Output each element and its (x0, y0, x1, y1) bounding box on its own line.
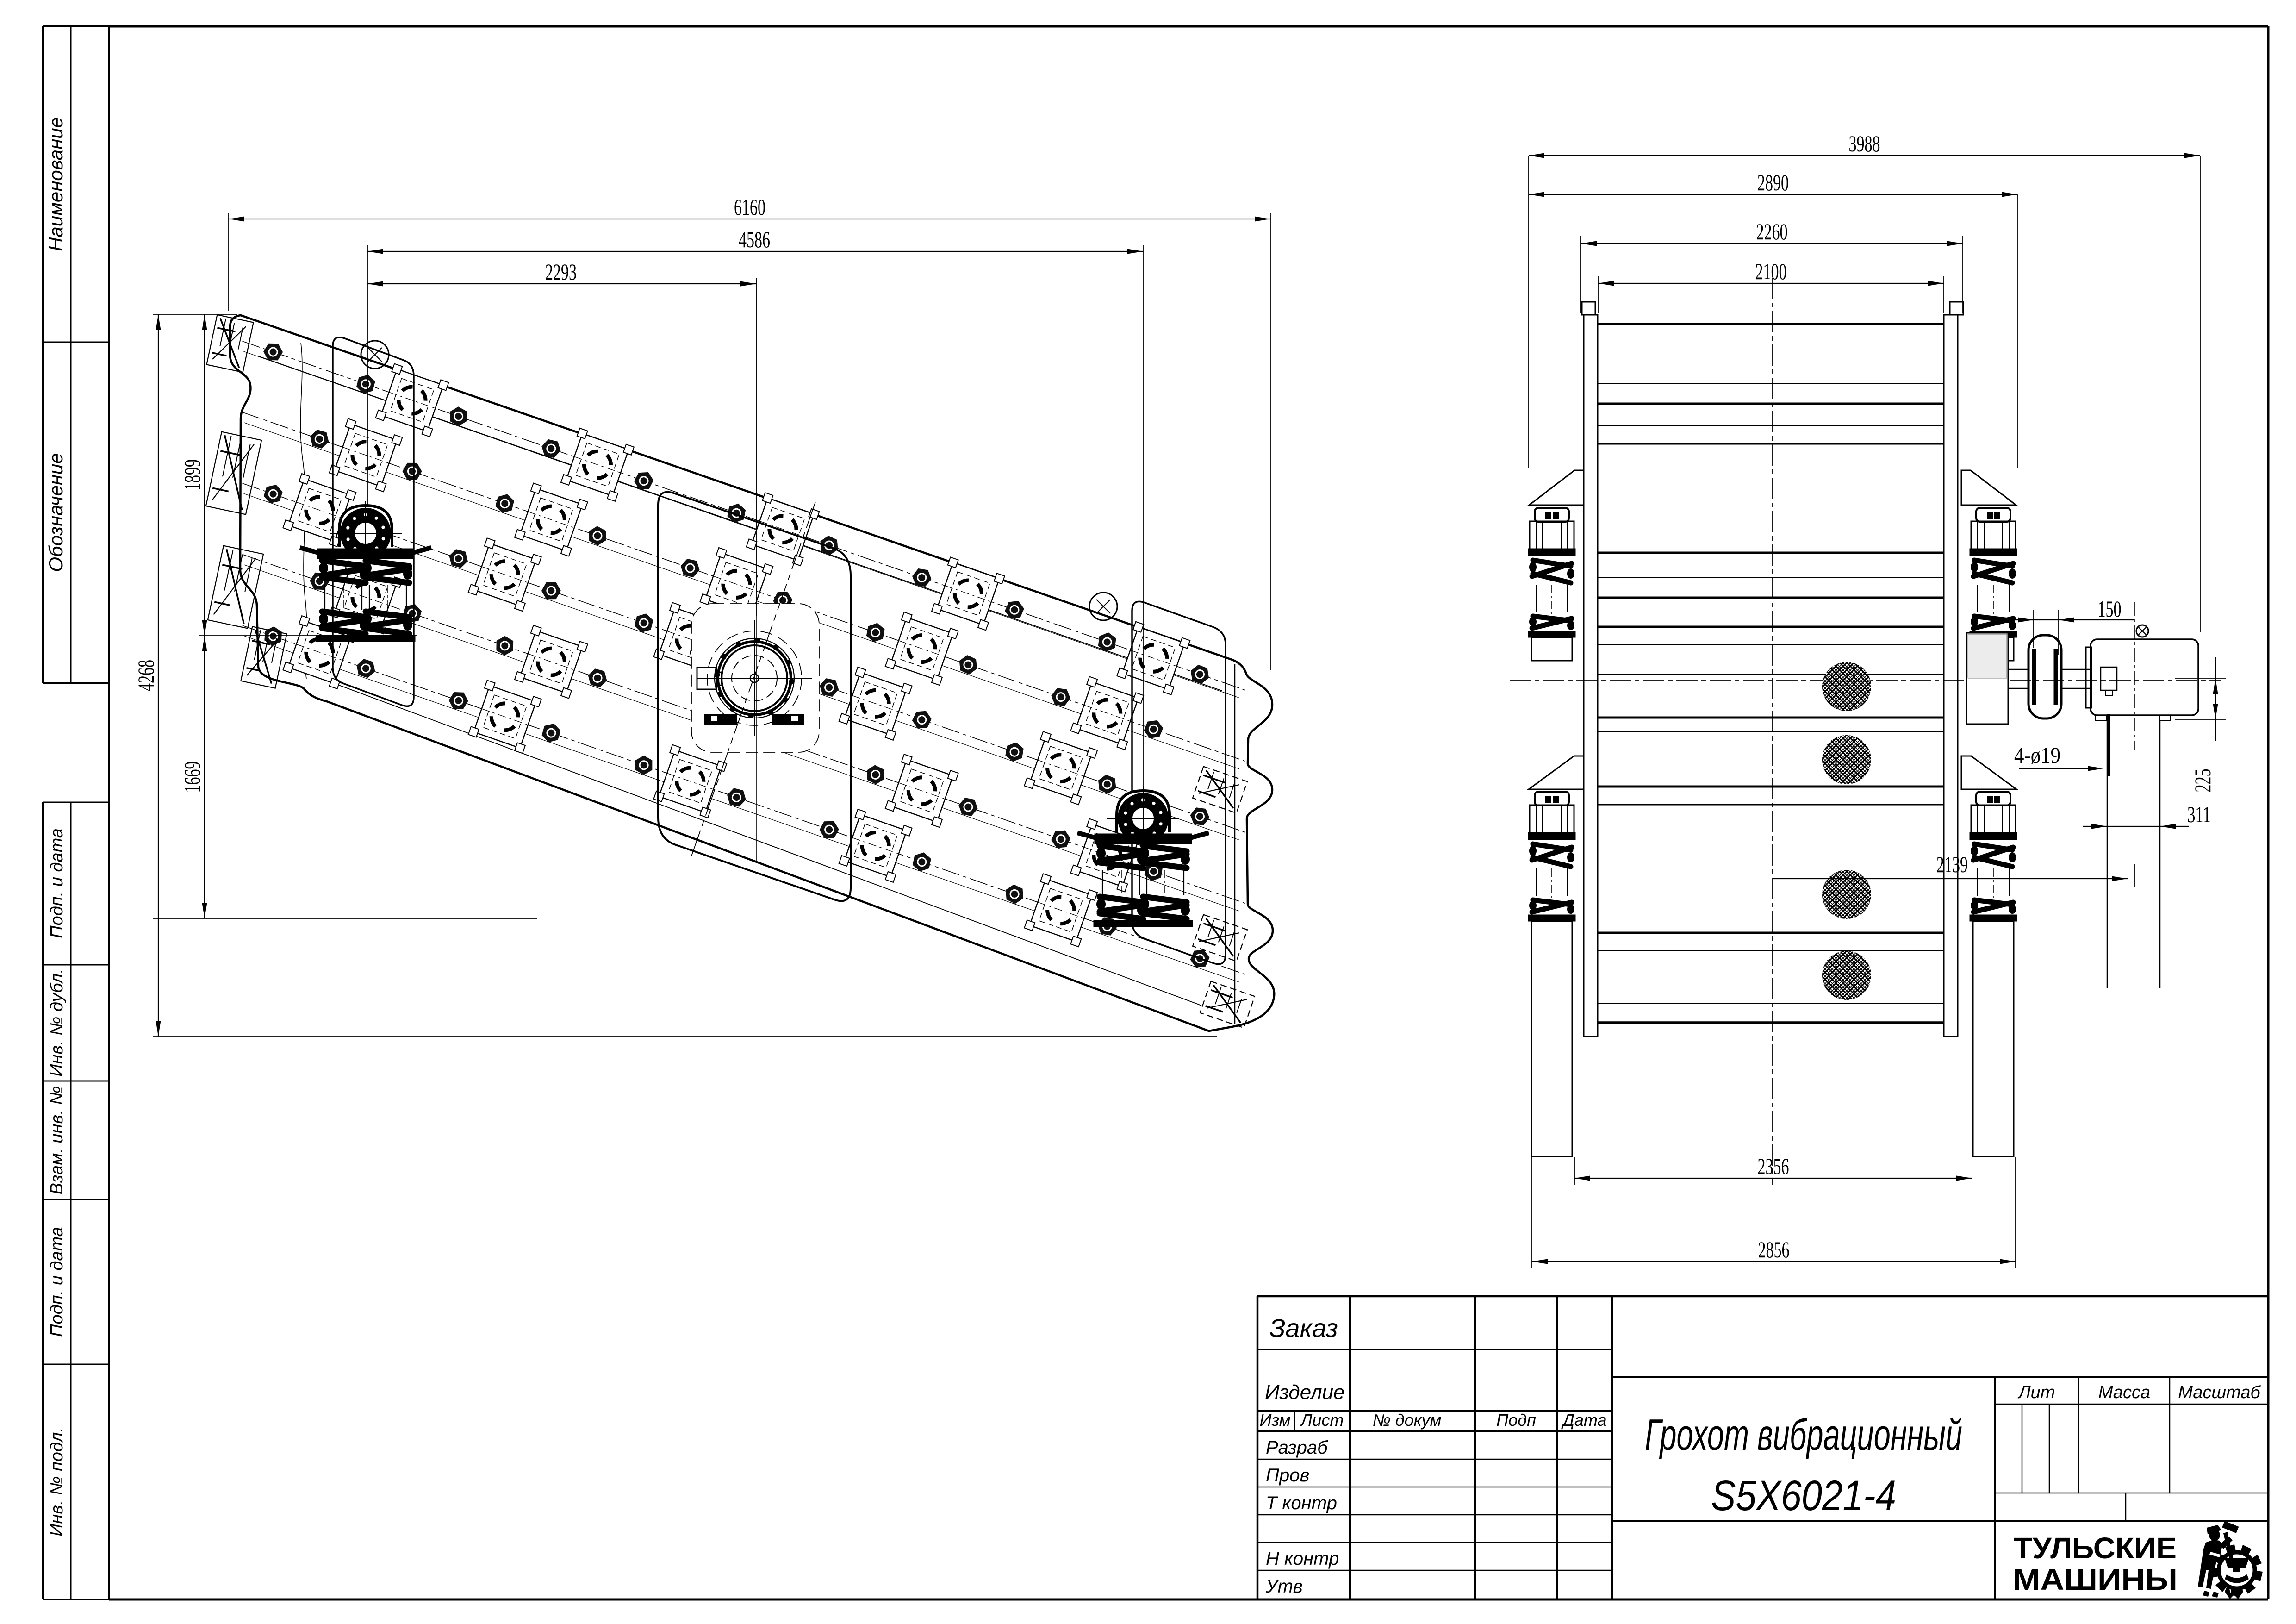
svg-text:4586: 4586 (739, 226, 770, 252)
svg-text:2356: 2356 (1758, 1153, 1789, 1179)
svg-text:№ докум: № докум (1373, 1411, 1442, 1430)
svg-text:Взам. инв. №: Взам. инв. № (47, 1086, 67, 1194)
svg-text:Дата: Дата (1561, 1411, 1607, 1430)
svg-text:Разраб: Разраб (1266, 1437, 1328, 1458)
svg-text:Обозначение: Обозначение (45, 453, 67, 572)
svg-text:6160: 6160 (734, 194, 765, 220)
svg-text:Наименование: Наименование (45, 117, 67, 251)
svg-text:МАШИНЫ: МАШИНЫ (2013, 1563, 2178, 1596)
svg-text:Подп. и дата: Подп. и дата (47, 1227, 67, 1337)
svg-text:2856: 2856 (1758, 1237, 1790, 1262)
svg-text:Подп: Подп (1496, 1411, 1536, 1430)
svg-text:150: 150 (2098, 596, 2122, 622)
svg-text:2890: 2890 (1757, 169, 1789, 195)
svg-text:Масштаб: Масштаб (2178, 1383, 2261, 1402)
svg-text:225: 225 (2190, 769, 2215, 793)
svg-text:2100: 2100 (1755, 258, 1787, 284)
svg-text:Инв. № подл.: Инв. № подл. (47, 1427, 67, 1537)
svg-text:Инв. № дубл.: Инв. № дубл. (47, 968, 67, 1077)
svg-text:Масса: Масса (2098, 1383, 2150, 1402)
svg-text:Утв: Утв (1265, 1576, 1303, 1597)
svg-text:1669: 1669 (179, 762, 205, 793)
svg-text:Пров: Пров (1266, 1465, 1309, 1486)
svg-text:ТУЛЬСКИЕ: ТУЛЬСКИЕ (2014, 1531, 2177, 1565)
svg-text:4-ø19: 4-ø19 (2014, 742, 2060, 768)
svg-text:1899: 1899 (179, 459, 205, 491)
svg-text:Т контр: Т контр (1266, 1493, 1337, 1513)
svg-text:Заказ: Заказ (1269, 1313, 1338, 1343)
svg-text:2260: 2260 (1756, 219, 1788, 244)
svg-text:4268: 4268 (133, 660, 159, 691)
svg-text:311: 311 (2187, 801, 2211, 827)
svg-text:Изделие: Изделие (1265, 1381, 1345, 1404)
svg-text:Грохот вибрационный: Грохот вибрационный (1645, 1410, 1962, 1460)
svg-text:Лит: Лит (2017, 1383, 2055, 1402)
svg-text:Н контр: Н контр (1266, 1549, 1339, 1569)
svg-text:2139: 2139 (1936, 851, 1968, 877)
svg-text:2293: 2293 (545, 259, 577, 285)
svg-text:Подп. и дата: Подп. и дата (47, 828, 67, 938)
svg-text:Лист: Лист (1300, 1411, 1344, 1430)
svg-text:3988: 3988 (1849, 131, 1880, 156)
svg-text:Изм: Изм (1260, 1411, 1291, 1430)
svg-text:S5X6021-4: S5X6021-4 (1711, 1472, 1896, 1519)
